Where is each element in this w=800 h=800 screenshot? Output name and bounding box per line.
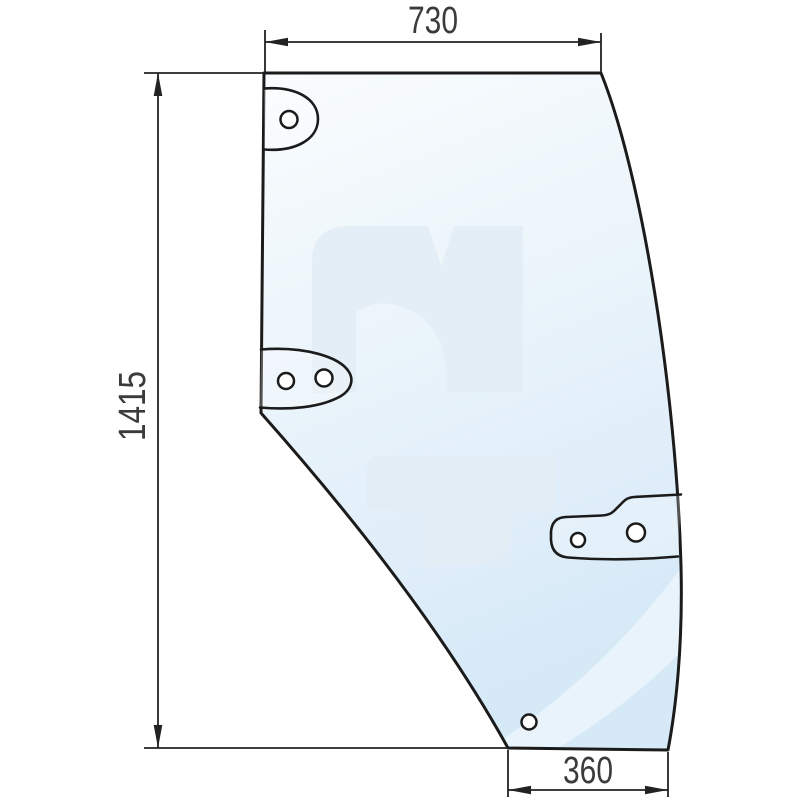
middle-tab-hole-right xyxy=(316,370,333,387)
catalog-product-image: 730 1415 360 xyxy=(0,0,800,800)
dimension-top-width: 730 xyxy=(265,0,601,72)
dimension-label-bottom-width: 360 xyxy=(563,750,613,792)
side-bracket-hole-left xyxy=(571,533,585,547)
bottom-corner-hole xyxy=(522,715,537,730)
arrowhead-left xyxy=(265,38,288,47)
dimension-label-height: 1415 xyxy=(112,371,154,441)
arrowhead-down xyxy=(154,725,163,748)
side-bracket-hole-right xyxy=(627,524,645,542)
arrowhead-right xyxy=(578,38,601,47)
dimension-bottom-width: 360 xyxy=(508,750,668,797)
arrowhead-right xyxy=(645,786,668,795)
top-tab-hole xyxy=(281,111,298,128)
middle-tab-hole-left xyxy=(278,373,294,389)
door-glass-technical-drawing: 730 1415 360 xyxy=(0,0,800,800)
arrowhead-up xyxy=(154,73,163,96)
dimension-label-top-width: 730 xyxy=(408,0,458,42)
arrowhead-left xyxy=(508,786,531,795)
